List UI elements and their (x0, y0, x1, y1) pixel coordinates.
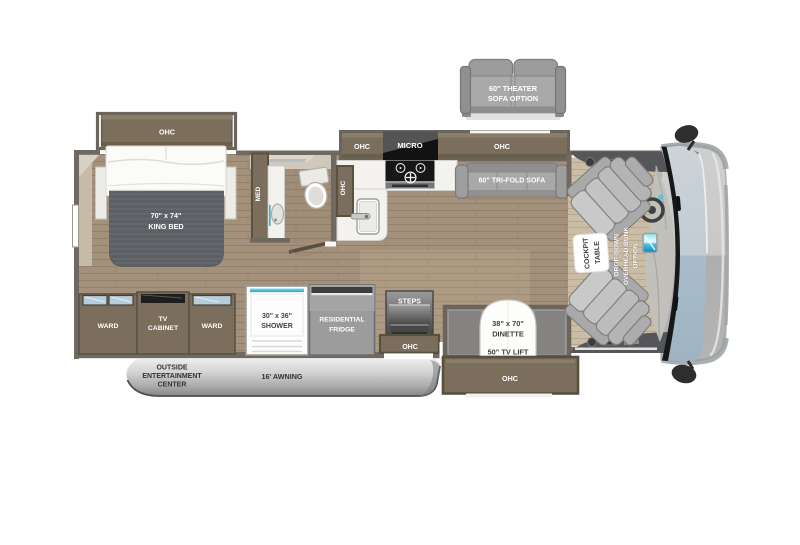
svg-text:RESIDENTIAL: RESIDENTIAL (319, 317, 364, 324)
svg-text:SOFA OPTION: SOFA OPTION (488, 94, 538, 103)
svg-text:50" TV LIFT: 50" TV LIFT (488, 348, 529, 357)
svg-text:STEPS: STEPS (398, 299, 421, 306)
svg-text:MICRO: MICRO (397, 141, 422, 150)
svg-text:MED: MED (255, 186, 262, 201)
svg-text:KING BED: KING BED (148, 222, 183, 231)
svg-text:16' AWNING: 16' AWNING (262, 372, 303, 381)
svg-text:OHC: OHC (402, 344, 418, 351)
svg-text:60" TRI-FOLD SOFA: 60" TRI-FOLD SOFA (479, 178, 546, 185)
svg-text:70" x 74": 70" x 74" (151, 211, 182, 220)
svg-text:WARD: WARD (202, 323, 223, 330)
svg-text:OUTSIDE: OUTSIDE (156, 365, 187, 372)
svg-text:WARD: WARD (98, 323, 119, 330)
svg-text:38" x 70": 38" x 70" (492, 319, 524, 328)
svg-text:OHC: OHC (340, 180, 347, 195)
svg-text:DROP-DOWN: DROP-DOWN (614, 234, 621, 276)
svg-text:OHC: OHC (494, 142, 510, 151)
svg-text:30" x 36": 30" x 36" (262, 313, 292, 320)
svg-text:DINETTE: DINETTE (492, 330, 524, 339)
svg-text:CENTER: CENTER (158, 382, 187, 389)
svg-text:OHC: OHC (159, 128, 175, 137)
svg-text:ENTERTAINMENT: ENTERTAINMENT (142, 373, 202, 380)
svg-text:OPTION: OPTION (633, 243, 640, 269)
svg-text:TV: TV (159, 316, 168, 323)
svg-text:OVERHEAD BUNK: OVERHEAD BUNK (623, 227, 630, 285)
svg-text:SHOWER: SHOWER (261, 323, 293, 330)
svg-text:FRIDGE: FRIDGE (329, 327, 355, 334)
svg-text:OHC: OHC (502, 374, 518, 383)
svg-text:60" THEATER: 60" THEATER (489, 84, 538, 93)
svg-text:OHC: OHC (354, 142, 370, 151)
svg-text:CABINET: CABINET (148, 325, 179, 332)
